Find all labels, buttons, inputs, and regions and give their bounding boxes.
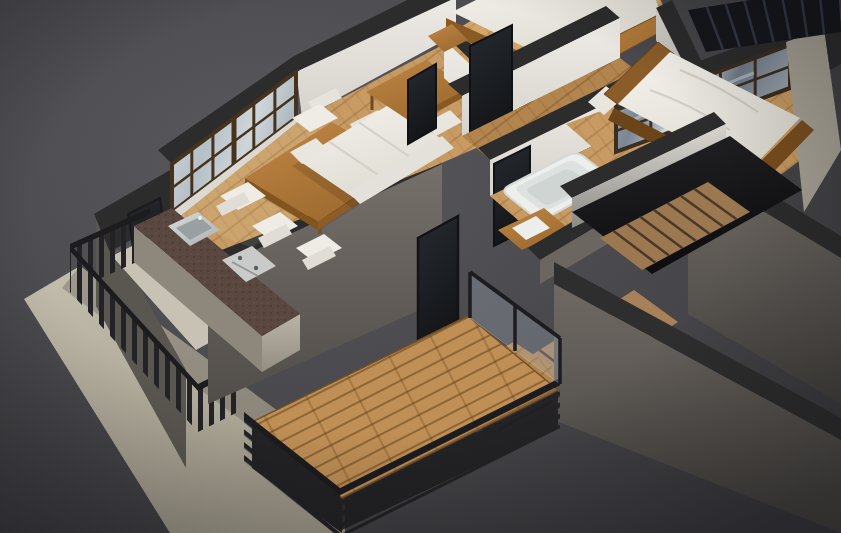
vignette-overlay	[0, 0, 841, 533]
floorplan-3d-render	[0, 0, 841, 533]
render-canvas	[0, 0, 841, 533]
